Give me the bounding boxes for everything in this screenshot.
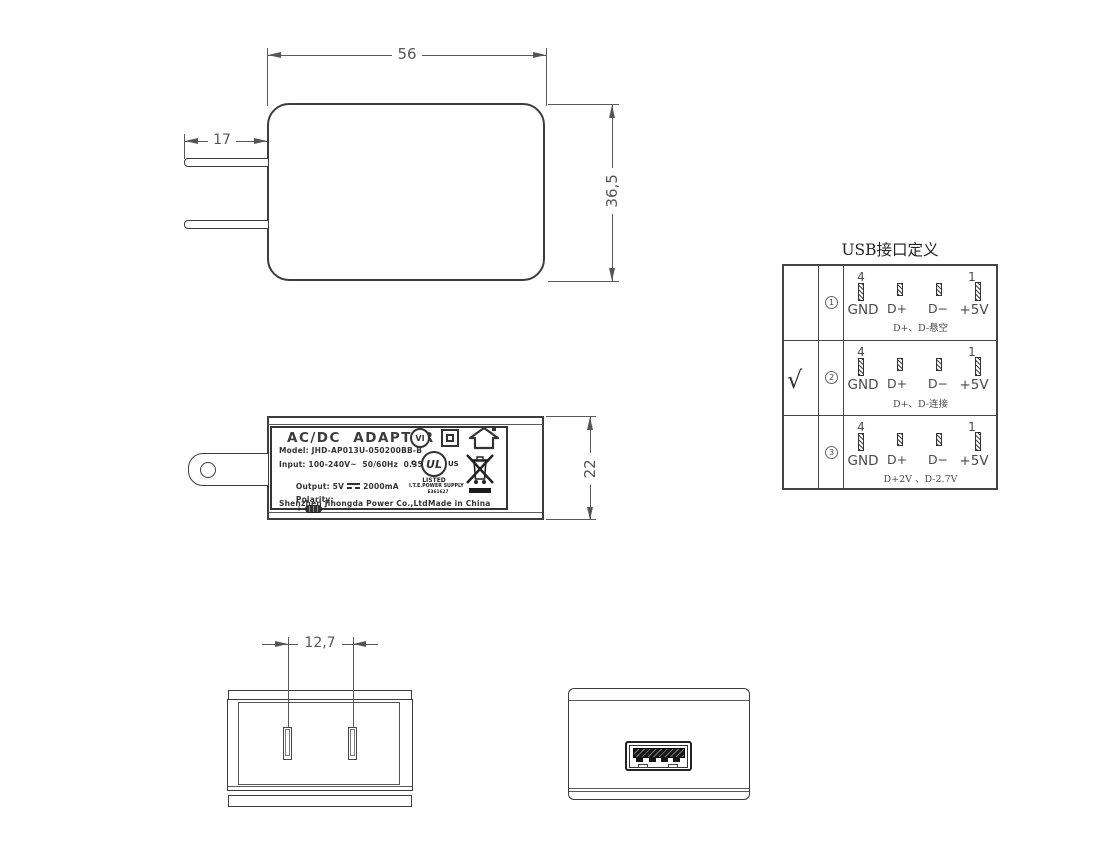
v5-pin-icon <box>975 282 981 301</box>
row-note: D+2V 、D-2.7V <box>843 471 998 485</box>
dim-arrow-down-icon <box>587 507 593 520</box>
dminus-pin-icon <box>936 433 942 446</box>
usb-latch-notch <box>638 764 648 768</box>
row-note: D+、D-悬空 <box>843 320 998 334</box>
dminus-pin-icon <box>936 283 942 296</box>
ul-c-text: c <box>411 458 416 467</box>
row-check-cell: √ <box>787 366 802 394</box>
usb-latch-notch <box>668 764 678 768</box>
ul-mark-icon: UL <box>421 451 447 477</box>
dim-56-text: 56 <box>392 47 422 63</box>
class2-double-square-icon <box>441 429 459 447</box>
row-circled-number: 1 <box>825 296 838 309</box>
dim-arrow-left-icon <box>268 52 281 58</box>
efficiency-vi-icon: VI <box>410 428 430 448</box>
dim-127-text: 12,7 <box>298 636 342 651</box>
dplus-pin-icon <box>897 358 903 371</box>
plug-cap-bottom <box>228 795 412 807</box>
dim-56-ext-right <box>546 48 547 106</box>
label-model: Model: JHD-AP013U-050200BB-B <box>279 446 422 455</box>
label-output-suffix: 2000mA <box>363 482 399 491</box>
pin-label-5v: +5V <box>956 377 992 393</box>
pin-label-dplus: D+ <box>885 301 909 316</box>
pin-number-4: 4 <box>849 345 873 359</box>
dim-arrow-up-icon <box>609 105 615 118</box>
adapter-technical-drawing: 56 17 36,5 AC/DC ADAPTER Model: JHD-AP01… <box>0 0 1100 861</box>
weee-bar <box>469 488 491 493</box>
gnd-pin-icon <box>858 358 864 376</box>
usb-face-bottom-line-2 <box>569 791 749 792</box>
plug-body-inner <box>238 702 400 785</box>
pin-label-gnd: GND <box>846 302 880 318</box>
ul-file-text: E361627 <box>424 490 452 495</box>
prong-slot-left <box>283 727 292 760</box>
gnd-pin-icon <box>858 433 864 451</box>
table-hline-1 <box>783 340 997 341</box>
dim-arrow-right-icon <box>533 52 546 58</box>
v5-pin-icon <box>975 432 981 451</box>
dim-arrow-up-icon <box>587 417 593 430</box>
pin-label-dminus: D− <box>926 452 950 467</box>
dplus-pin-icon <box>897 433 903 446</box>
v5-pin-icon <box>975 357 981 376</box>
dminus-pin-icon <box>936 358 942 371</box>
usb-face-bottom-line-1 <box>569 788 749 789</box>
dim-arrow-left-icon <box>353 641 366 647</box>
dim-arrow-right-icon <box>275 641 288 647</box>
pin-label-gnd: GND <box>846 453 880 469</box>
pin-label-5v: +5V <box>956 302 992 318</box>
dim-arrow-down-icon <box>609 268 615 281</box>
pin-label-dminus: D− <box>926 301 950 316</box>
usb-contact-pad <box>673 757 680 762</box>
efficiency-vi-text: VI <box>415 434 424 443</box>
usb-face-top-line <box>569 700 749 701</box>
dc-symbol-icon <box>347 483 360 490</box>
label-input: Input: 100-240V~ 50/60Hz 0.35A <box>279 460 429 469</box>
usb-contact-pad <box>649 757 656 762</box>
pin-label-dminus: D− <box>926 376 950 391</box>
pin-label-5v: +5V <box>956 453 992 469</box>
ul-listed-text: LISTED <box>420 477 448 484</box>
dim-arrow-left-icon <box>185 138 198 144</box>
row-circled-number: 2 <box>825 371 838 384</box>
label-company: Shenzhen Jihongda Power Co.,Ltd. <box>279 499 431 508</box>
prong-top-front <box>184 158 269 167</box>
dim-365-text: 36,5 <box>605 168 621 214</box>
prong-hole <box>200 462 216 478</box>
pin-number-4: 4 <box>849 270 873 284</box>
pin-label-dplus: D+ <box>885 452 909 467</box>
table-hline-2 <box>783 415 997 416</box>
pin-label-dplus: D+ <box>885 376 909 391</box>
table-vline-1 <box>818 265 819 489</box>
row-number: 1 <box>829 298 834 307</box>
usb-contact-pad <box>636 757 643 762</box>
dim-17-text: 17 <box>208 133 236 148</box>
ul-letters: UL <box>426 458 442 471</box>
row-circled-number: 3 <box>825 446 838 459</box>
ul-supply-text: I.T.E.POWER SUPPLY <box>409 484 461 489</box>
pin-label-gnd: GND <box>846 377 880 393</box>
dim-arrow-right-icon <box>254 138 267 144</box>
inner-square <box>446 434 454 442</box>
usb-table-title: USB接口定义 <box>782 238 998 260</box>
row-note: D+、D-连接 <box>843 396 998 410</box>
weee-bin-icon <box>465 452 495 488</box>
pin-number-4: 4 <box>849 420 873 434</box>
dim-127-ext-left <box>288 637 289 727</box>
row-number: 2 <box>829 373 834 382</box>
dim-22-text: 22 <box>583 453 599 485</box>
prong-bottom-front <box>184 220 269 229</box>
indoor-use-house-icon <box>468 425 500 450</box>
usb-contact-pad <box>661 757 668 762</box>
dim-127-ext-right <box>353 637 354 727</box>
table-vline-2 <box>843 265 844 489</box>
label-made-in: Made in China <box>428 499 491 508</box>
side-cap-top-line <box>268 424 543 425</box>
gnd-pin-icon <box>858 283 864 301</box>
dim-365-ext-bottom <box>548 281 619 282</box>
plug-bottom-band <box>228 786 412 787</box>
dplus-pin-icon <box>897 283 903 296</box>
row-number: 3 <box>829 448 834 457</box>
ul-us-text: US <box>448 460 459 468</box>
prong-slot-right <box>348 727 357 760</box>
adapter-body-front <box>267 103 545 281</box>
